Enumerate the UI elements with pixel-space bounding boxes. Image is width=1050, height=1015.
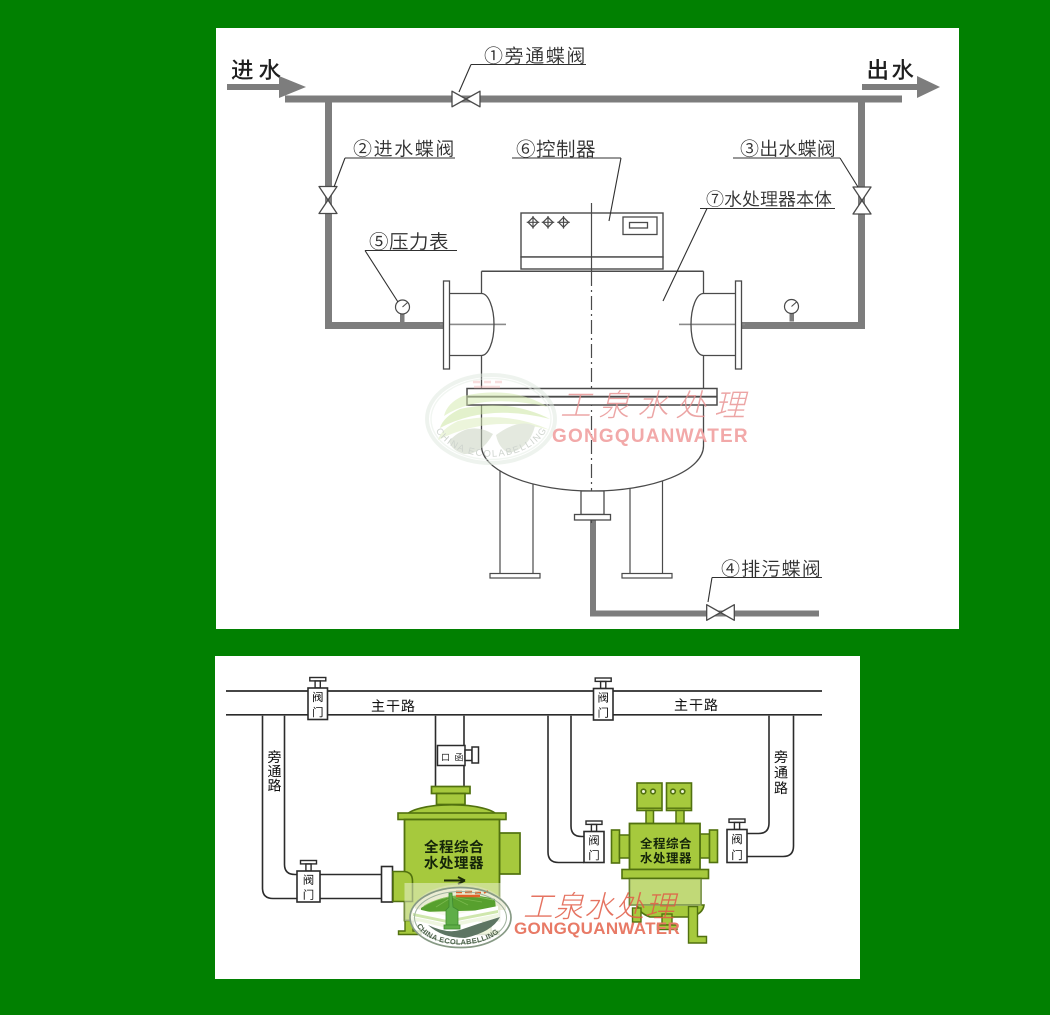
svg-text:GONGQUANWATER: GONGQUANWATER: [514, 919, 680, 938]
svg-text:GONGQUANWATER: GONGQUANWATER: [552, 426, 749, 447]
